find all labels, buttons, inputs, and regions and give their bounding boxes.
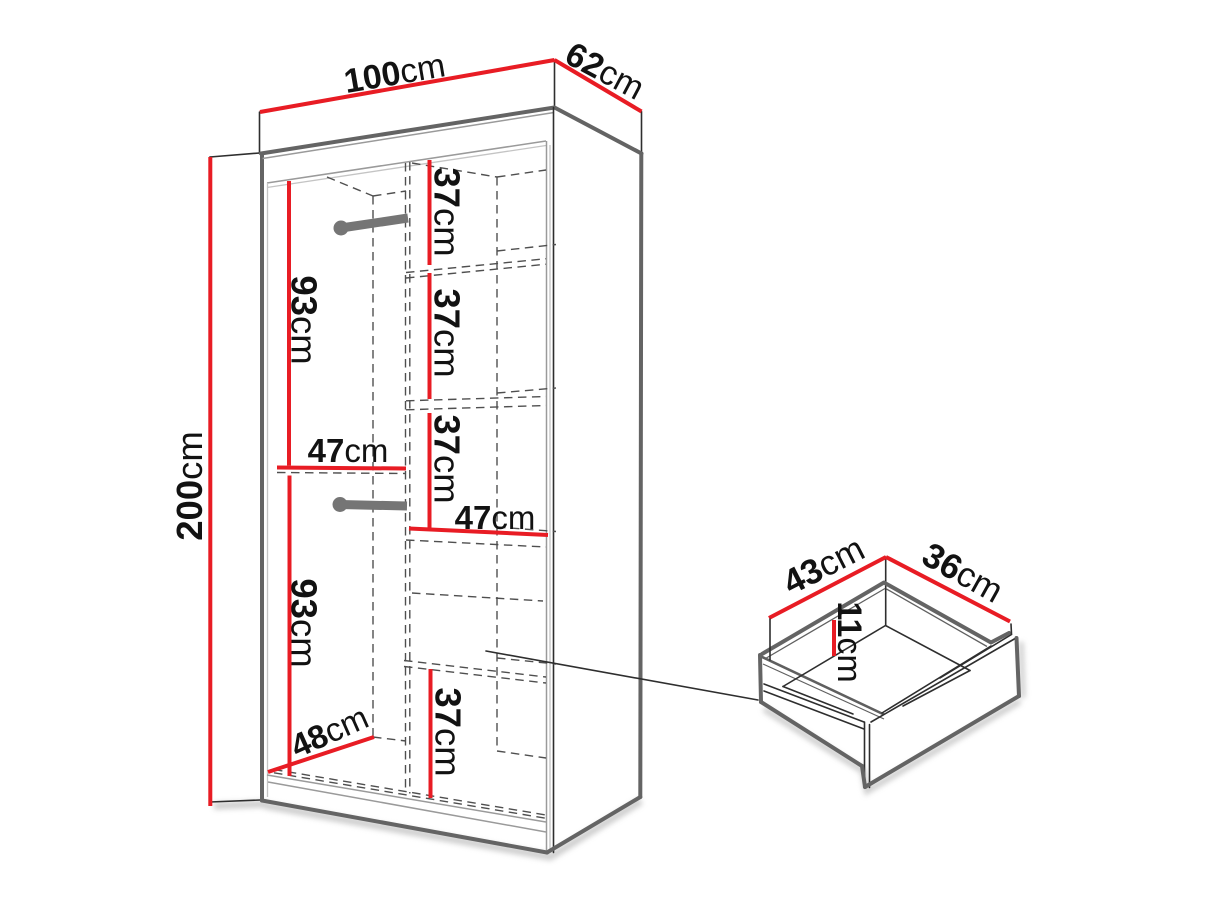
svg-text:93cm: 93cm [284, 578, 325, 667]
svg-text:37cm: 37cm [427, 288, 468, 377]
svg-text:37cm: 37cm [427, 414, 468, 503]
svg-text:47cm: 47cm [455, 499, 536, 536]
svg-text:37cm: 37cm [427, 167, 468, 256]
svg-text:200cm: 200cm [169, 431, 210, 541]
svg-text:93cm: 93cm [284, 275, 325, 364]
svg-text:37cm: 37cm [428, 687, 469, 776]
svg-text:11cm: 11cm [830, 601, 868, 682]
svg-text:47cm: 47cm [308, 432, 389, 469]
